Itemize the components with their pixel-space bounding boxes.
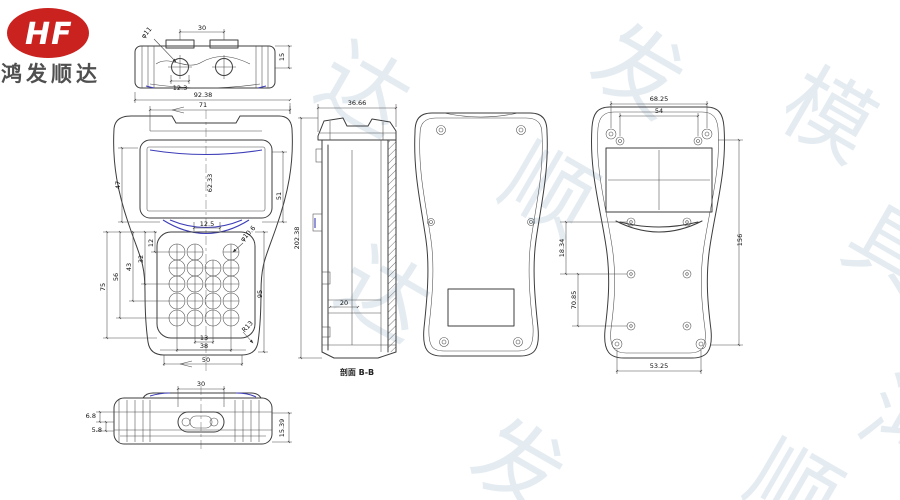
dim-back-bottom-span: 53.25 [650, 362, 669, 370]
cad-canvas: 达 发 模 具 鸿 顺 发 达 顺 HF 鸿发顺达 30 φ11 12.3 92… [0, 0, 900, 500]
dim-front-screen-left: 47 [114, 181, 122, 189]
screw-holes [627, 218, 691, 330]
dim-front-bot-c: 50 [202, 356, 210, 364]
dim-back-left-lower: 70.85 [570, 291, 578, 310]
watermark-char: 模 [765, 49, 893, 182]
logo-text: HF [25, 17, 73, 52]
back-outer-view: 68.25 54 156 18.34 70.85 53.25 [558, 95, 744, 374]
dim-top-overall-width: 92.38 [194, 91, 213, 99]
dim-top-pitch: 30 [198, 24, 206, 32]
dim-front-key-dia: φ10.6 [239, 224, 258, 243]
brand-logo: HF 鸿发顺达 [1, 8, 101, 86]
section-view-label: 剖面 B-B [340, 367, 374, 377]
dim-front-bot-b: 38 [200, 342, 208, 350]
watermark-char: 顺 [485, 124, 613, 257]
watermark-char: 达 [320, 229, 448, 362]
dim-back-window-span: 54 [655, 107, 663, 115]
dim-front-kp-b: 43 [125, 263, 133, 271]
dim-back-lug-span: 68.25 [650, 95, 669, 103]
top-view: 30 φ11 12.3 92.38 15 [135, 24, 292, 114]
watermark-char: 发 [455, 399, 583, 500]
bottom-view: 30 6.8 5.8 15.39 [86, 380, 292, 450]
front-view: 71 47 62.33 51 12.5 φ10.6 75 56 43 32 12… [99, 101, 292, 372]
dim-top-end-height: 15 [278, 53, 286, 61]
dim-front-under-screen: 12.5 [200, 220, 214, 228]
dim-bottom-lip-b: 5.8 [92, 426, 102, 434]
dim-section-overall-height: 202.38 [293, 227, 301, 250]
dim-bottom-lip-a: 6.8 [86, 412, 96, 420]
dim-section-depth: 36.66 [348, 99, 367, 107]
dim-top-hole-dia: φ11 [139, 25, 153, 40]
dim-section-shelf: 20 [340, 299, 348, 307]
dim-bottom-slot-width: 30 [197, 380, 205, 388]
watermark-char: 具 [828, 184, 900, 317]
dim-front-side-height: 95 [256, 290, 264, 298]
dim-front-kp-d: 12 [147, 239, 155, 247]
dim-front-screen-right: 51 [275, 192, 283, 200]
drawing-sheet: 达 发 模 具 鸿 顺 发 达 顺 HF 鸿发顺达 30 φ11 12.3 92… [0, 0, 900, 500]
dim-back-screw-height: 156 [736, 234, 744, 246]
dim-top-offset: 12.3 [173, 84, 187, 92]
watermark-char: 顺 [730, 421, 858, 500]
company-name: 鸿发顺达 [1, 62, 101, 86]
dim-bottom-side-height: 15.39 [278, 419, 286, 438]
dim-front-opening-width: 71 [199, 101, 207, 109]
watermark-char: 达 [300, 24, 428, 157]
dim-front-screen-center: 62.33 [206, 174, 214, 193]
keypad-buttons [169, 244, 239, 326]
dim-front-kp-c: 32 [137, 255, 145, 263]
battery-compartment [448, 289, 514, 326]
dim-front-bot-a: 13 [200, 334, 208, 342]
dim-front-kp-total: 75 [99, 283, 107, 291]
dim-back-left-upper: 18.34 [558, 239, 566, 258]
dim-front-kp-a: 56 [112, 273, 120, 281]
